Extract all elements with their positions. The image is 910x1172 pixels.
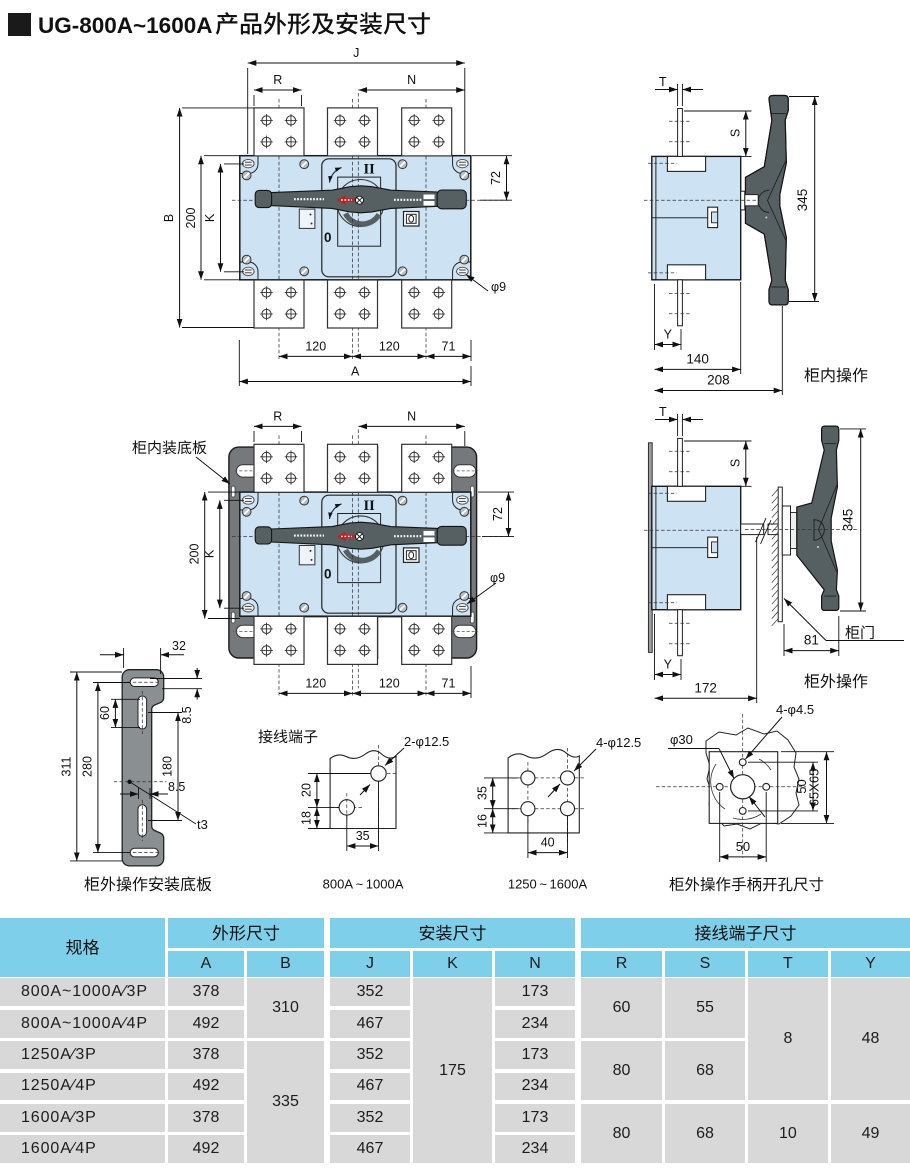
- svg-text:71: 71: [442, 676, 456, 690]
- svg-text:φ9: φ9: [491, 280, 506, 294]
- svg-text:T: T: [659, 405, 667, 419]
- svg-text:120: 120: [379, 339, 400, 353]
- svg-text:N: N: [407, 73, 416, 87]
- svg-text:R: R: [273, 409, 282, 423]
- svg-text:72: 72: [491, 507, 505, 521]
- svg-text:72: 72: [489, 171, 503, 185]
- svg-text:0: 0: [324, 230, 332, 245]
- svg-text:65X65: 65X65: [807, 769, 822, 807]
- svg-text:R: R: [273, 73, 282, 87]
- svg-text:T: T: [659, 75, 667, 89]
- svg-text:4-φ12.5: 4-φ12.5: [596, 735, 641, 750]
- svg-text:35: 35: [475, 786, 489, 800]
- svg-text:32: 32: [172, 639, 186, 653]
- svg-text:Y: Y: [664, 658, 673, 672]
- svg-text:180: 180: [161, 756, 175, 777]
- svg-text:N: N: [407, 409, 416, 423]
- svg-text:200: 200: [187, 544, 201, 565]
- svg-text:8.5: 8.5: [168, 780, 185, 794]
- svg-text:UG-800A~1600A: UG-800A~1600A: [38, 13, 212, 38]
- svg-text:J: J: [353, 46, 359, 60]
- svg-text:81: 81: [804, 633, 819, 648]
- svg-text:t3: t3: [197, 817, 208, 832]
- svg-text:311: 311: [60, 756, 74, 776]
- svg-text:Y: Y: [664, 328, 673, 342]
- svg-text:35: 35: [356, 829, 370, 843]
- svg-text:345: 345: [841, 509, 856, 532]
- svg-text:K: K: [203, 549, 217, 558]
- svg-text:φ9: φ9: [490, 571, 505, 585]
- svg-text:172: 172: [694, 680, 717, 695]
- svg-text:4-φ4.5: 4-φ4.5: [776, 702, 814, 717]
- svg-text:200: 200: [184, 208, 198, 229]
- svg-text:K: K: [203, 213, 217, 222]
- svg-text:40: 40: [541, 836, 555, 850]
- svg-text:A: A: [351, 365, 360, 379]
- svg-text:φ30: φ30: [670, 732, 693, 747]
- svg-text:18: 18: [300, 811, 314, 825]
- svg-text:140: 140: [686, 351, 709, 366]
- svg-text:120: 120: [379, 676, 400, 690]
- svg-text:2-φ12.5: 2-φ12.5: [404, 734, 449, 749]
- svg-text:S: S: [728, 129, 742, 137]
- svg-text:1250 ~ 1600A: 1250 ~ 1600A: [508, 877, 588, 892]
- svg-text:60: 60: [98, 706, 112, 720]
- svg-text:280: 280: [81, 756, 95, 777]
- svg-text:120: 120: [305, 339, 326, 353]
- svg-text:S: S: [728, 459, 742, 467]
- svg-text:208: 208: [707, 373, 730, 388]
- svg-text:345: 345: [795, 189, 810, 212]
- svg-text:B: B: [162, 214, 176, 222]
- svg-text:50: 50: [736, 839, 750, 854]
- svg-text:20: 20: [300, 783, 314, 797]
- svg-text:16: 16: [475, 814, 489, 828]
- svg-text:II: II: [364, 162, 376, 178]
- svg-text:120: 120: [305, 676, 326, 690]
- svg-text:800A ~ 1000A: 800A ~ 1000A: [323, 877, 404, 892]
- svg-text:71: 71: [442, 339, 456, 353]
- svg-text:8.5: 8.5: [180, 706, 194, 723]
